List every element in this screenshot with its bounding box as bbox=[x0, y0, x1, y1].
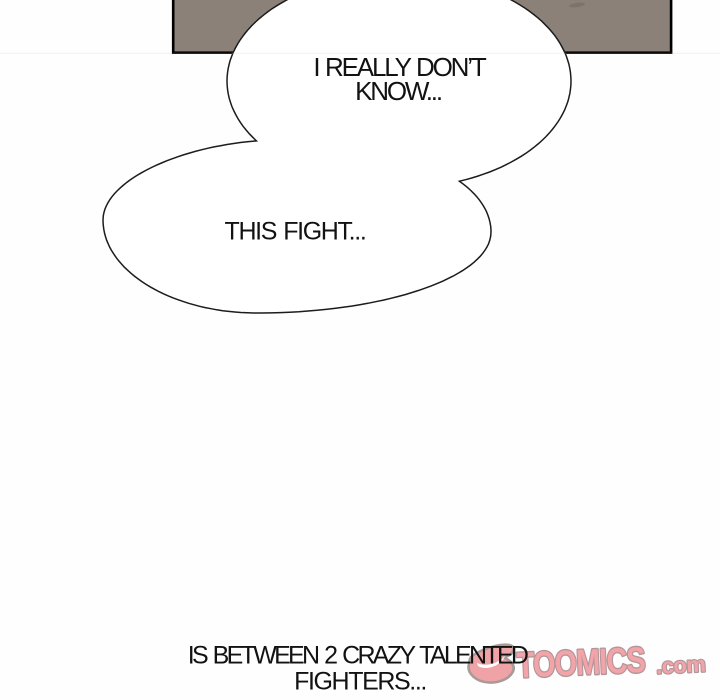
svg-text:.com: .com bbox=[655, 652, 705, 679]
svg-text:FIGHTERS...: FIGHTERS... bbox=[294, 668, 426, 696]
svg-text:IS BETWEEN 2 CRAZY TALENTED: IS BETWEEN 2 CRAZY TALENTED bbox=[188, 642, 528, 670]
svg-text:KNOW...: KNOW... bbox=[355, 76, 441, 106]
svg-text:TOOMICS: TOOMICS bbox=[516, 639, 646, 686]
svg-text:THIS FIGHT...: THIS FIGHT... bbox=[225, 218, 366, 246]
